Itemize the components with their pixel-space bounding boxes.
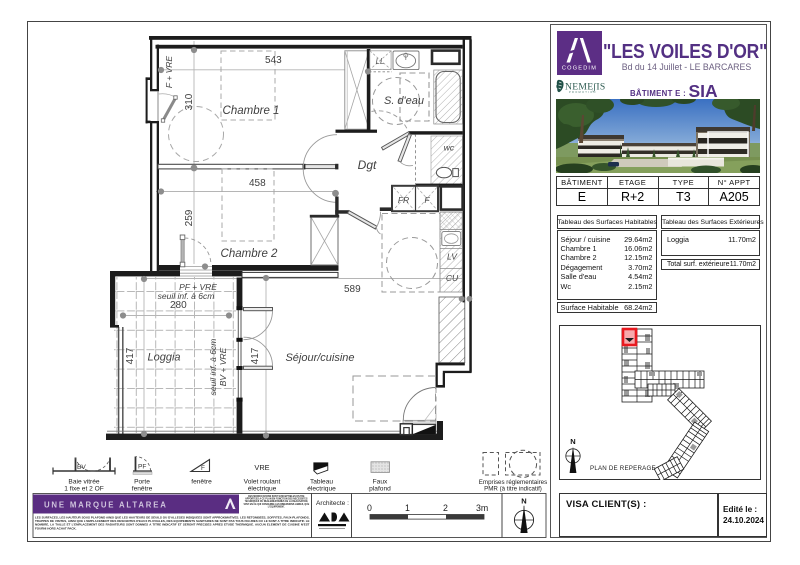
svg-text:589: 589 [344, 284, 361, 295]
svg-text:Porte: Porte [134, 479, 150, 486]
svg-text:S. d'eau: S. d'eau [384, 95, 424, 107]
svg-text:N: N [521, 497, 526, 506]
svg-text:LL: LL [376, 57, 385, 66]
svg-text:plafond: plafond [369, 486, 391, 493]
svg-text:F + VRE: F + VRE [164, 56, 174, 89]
svg-text:Tableau: Tableau [310, 479, 333, 486]
svg-text:PMR (à titre indicatif): PMR (à titre indicatif) [484, 486, 542, 493]
svg-text:LV: LV [447, 252, 458, 262]
svg-text:PLAN DE REPERAGE: PLAN DE REPERAGE [590, 465, 656, 472]
svg-text:PROMOTION: PROMOTION [569, 90, 597, 94]
svg-text:BV: BV [77, 464, 86, 471]
svg-text:458: 458 [249, 178, 266, 189]
svg-text:fenêtre: fenêtre [132, 486, 153, 493]
svg-text:wc: wc [444, 143, 455, 153]
svg-text:F: F [201, 465, 205, 472]
svg-text:Loggia: Loggia [147, 352, 180, 364]
svg-text:électrique: électrique [307, 486, 336, 493]
svg-text:BV + VRE: BV + VRE [218, 347, 228, 386]
svg-text:280: 280 [170, 300, 187, 311]
svg-text:F: F [424, 195, 430, 205]
svg-text:417: 417 [125, 347, 136, 364]
svg-text:Séjour/cuisine: Séjour/cuisine [285, 352, 354, 364]
svg-text:1 fixe et 2 OF: 1 fixe et 2 OF [64, 486, 104, 493]
svg-text:seuil inf. à 6cm: seuil inf. à 6cm [158, 291, 215, 301]
svg-text:543: 543 [265, 55, 282, 66]
svg-text:CU: CU [446, 273, 459, 283]
svg-text:fenêtre: fenêtre [191, 479, 212, 486]
svg-text:259: 259 [184, 209, 195, 226]
svg-text:0: 0 [367, 503, 372, 513]
svg-text:2: 2 [443, 503, 448, 513]
svg-text:VRE: VRE [254, 463, 269, 472]
svg-text:Baie vitrée: Baie vitrée [68, 479, 99, 486]
svg-text:Chambre 1: Chambre 1 [223, 105, 280, 117]
svg-text:COGEDIM: COGEDIM [562, 66, 597, 72]
svg-text:Dgt: Dgt [358, 158, 377, 172]
svg-text:3m: 3m [476, 503, 488, 513]
svg-text:1: 1 [405, 503, 410, 513]
svg-text:Volet roulant: Volet roulant [244, 479, 281, 486]
svg-text:électrique: électrique [248, 486, 277, 493]
svg-text:PF: PF [138, 464, 146, 471]
svg-text:Architecte :: Architecte : [316, 500, 349, 507]
svg-text:FR: FR [398, 195, 409, 205]
svg-text:417: 417 [250, 347, 261, 364]
svg-text:Chambre 2: Chambre 2 [221, 248, 278, 260]
svg-text:310: 310 [184, 93, 195, 110]
svg-text:N: N [570, 437, 575, 446]
svg-text:UNE MARQUE ALTAREA: UNE MARQUE ALTAREA [44, 501, 168, 510]
svg-text:seuil inf. à 6cm: seuil inf. à 6cm [208, 339, 218, 396]
svg-text:Faux: Faux [373, 479, 388, 486]
